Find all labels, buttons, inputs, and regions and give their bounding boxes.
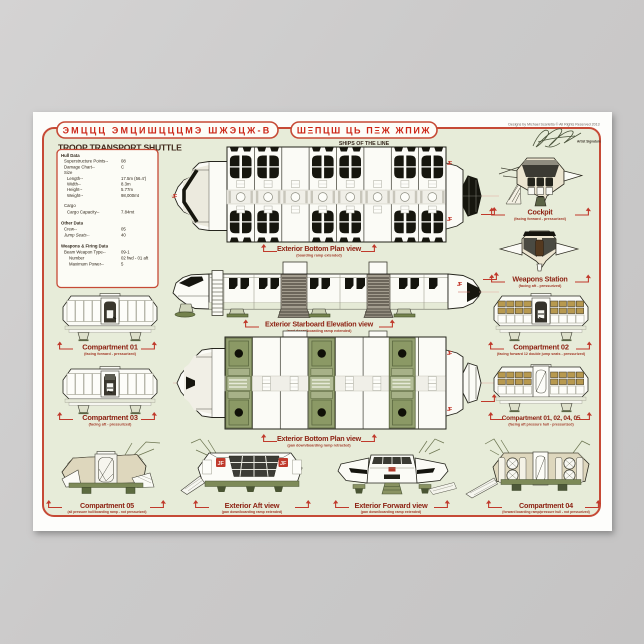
svg-text:JF: JF <box>280 461 287 467</box>
svg-text:(facing aft - pressurized): (facing aft - pressurized) <box>89 423 133 427</box>
svg-text:Length--: Length-- <box>67 176 84 181</box>
svg-text:Beam Weapon Type--: Beam Weapon Type-- <box>64 250 106 255</box>
svg-text:Number: Number <box>69 256 85 261</box>
svg-text:Damage Chart--: Damage Chart-- <box>64 164 95 169</box>
svg-text:Compartment 01, 02, 04, 05: Compartment 01, 02, 04, 05 <box>502 415 581 422</box>
svg-text:Compartment 04: Compartment 04 <box>519 501 573 510</box>
svg-text:(facing aft - pressurized): (facing aft - pressurized) <box>519 284 563 288</box>
svg-text:Jump Seats--: Jump Seats-- <box>63 233 90 238</box>
svg-text:JF: JF <box>218 461 225 467</box>
svg-text:09-1: 09-1 <box>121 250 130 255</box>
svg-text:7.84mt: 7.84mt <box>121 210 135 215</box>
svg-text:Cargo: Cargo <box>64 203 76 208</box>
svg-text:Weapons Station: Weapons Station <box>512 275 567 284</box>
svg-text:Exterior Bottom Plan view: Exterior Bottom Plan view <box>277 244 362 253</box>
svg-text:02 fwd - 01 aft: 02 fwd - 01 aft <box>121 256 149 261</box>
svg-text:Superstructure Points--: Superstructure Points-- <box>64 159 109 164</box>
svg-text:Weapons & Firing Data: Weapons & Firing Data <box>61 244 109 249</box>
svg-text:Compartment 01: Compartment 01 <box>82 343 138 352</box>
svg-text:(facing aft pressure hull - pr: (facing aft pressure hull - pressurized) <box>508 423 574 427</box>
svg-text:Height--: Height-- <box>67 187 83 192</box>
svg-text:Artist Signature: Artist Signature <box>577 140 601 144</box>
svg-text:Exterior Aft view: Exterior Aft view <box>225 501 280 510</box>
svg-text:8.3m: 8.3m <box>121 182 131 187</box>
svg-text:ШΞПЦШ ЦЬ ПΞЖ ЖПИЖ: ШΞПЦШ ЦЬ ПΞЖ ЖПИЖ <box>297 126 431 136</box>
svg-text:(pan down/boarding ramp extend: (pan down/boarding ramp extended) <box>222 510 282 514</box>
svg-text:SHIPS OF THE LINE: SHIPS OF THE LINE <box>339 141 390 147</box>
svg-text:98,000mt: 98,000mt <box>121 193 140 198</box>
svg-text:17.5m (56.4'): 17.5m (56.4') <box>121 176 147 181</box>
svg-text:(boarding ramp extended): (boarding ramp extended) <box>296 254 342 258</box>
svg-text:(pan down/boarding ramp retrac: (pan down/boarding ramp retracted) <box>287 444 351 448</box>
svg-text:(forward boarding ramp/pressur: (forward boarding ramp/pressure hull - n… <box>502 510 589 514</box>
svg-text:Size: Size <box>64 170 73 175</box>
svg-text:Crew--: Crew-- <box>64 227 77 232</box>
svg-text:Exterior Forward view: Exterior Forward view <box>354 501 427 510</box>
svg-text:5.77m: 5.77m <box>121 187 133 192</box>
svg-text:(pan down/boarding ramp extend: (pan down/boarding ramp extended) <box>361 510 421 514</box>
svg-text:Other Data: Other Data <box>61 221 84 226</box>
svg-text:05: 05 <box>121 227 126 232</box>
svg-text:ЭМЦЦЦ ЭМЦИШЦЦЦМЭ ШЖЭЦЖ-В: ЭМЦЦЦ ЭМЦИШЦЦЦМЭ ШЖЭЦЖ-В <box>63 126 272 136</box>
svg-text:(all pressure hull/boarding ra: (all pressure hull/boarding ramp - not p… <box>68 510 147 514</box>
svg-text:Weight--: Weight-- <box>67 193 84 198</box>
svg-text:Exterior Bottom Plan view: Exterior Bottom Plan view <box>277 434 362 443</box>
svg-text:Exterior Starboard Elevation v: Exterior Starboard Elevation view <box>265 320 374 329</box>
svg-text:Compartment 02: Compartment 02 <box>513 343 569 352</box>
svg-text:Width--: Width-- <box>67 182 81 187</box>
svg-text:08: 08 <box>121 159 126 164</box>
svg-text:(facing forward - pressurized): (facing forward - pressurized) <box>514 217 567 221</box>
svg-text:Maximum Power--: Maximum Power-- <box>69 262 104 267</box>
svg-text:Hull Data: Hull Data <box>61 153 80 158</box>
svg-text:40: 40 <box>121 233 126 238</box>
svg-text:Designs by Michael Scarletta ©: Designs by Michael Scarletta © All Right… <box>508 123 599 127</box>
svg-text:Cockpit: Cockpit <box>528 208 554 217</box>
svg-text:C: C <box>121 164 124 169</box>
svg-text:(facing forward - pressurized): (facing forward - pressurized) <box>84 352 137 356</box>
svg-text:(facing forward 12 double jump: (facing forward 12 double jump seats - p… <box>497 352 586 356</box>
svg-text:Cargo Capacity--: Cargo Capacity-- <box>67 210 100 215</box>
svg-text:Compartment 05: Compartment 05 <box>80 501 134 510</box>
svg-text:Compartment 03: Compartment 03 <box>82 413 138 422</box>
